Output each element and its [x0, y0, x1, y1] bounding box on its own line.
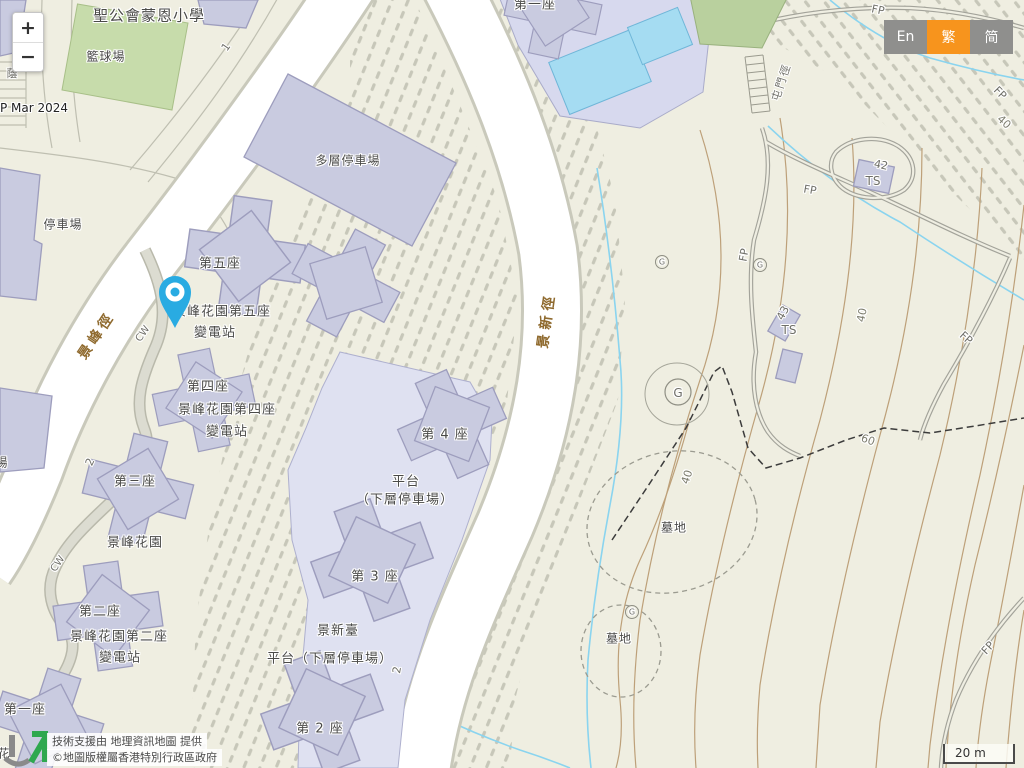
grave-symbol-small-2: G: [757, 261, 763, 270]
cemetery-label-1: 墓地: [661, 519, 687, 536]
cw-label-1: CW: [134, 324, 153, 344]
attribution-support: 技術支援由 地理資訊地圖 提供: [47, 733, 207, 750]
tower2-label: 第 2 座: [296, 718, 344, 737]
fp-label-3: FP: [802, 182, 817, 197]
cw-label-2: CW: [49, 554, 68, 574]
zoom-control: + −: [12, 12, 44, 72]
block4-substation-line2: 變電站: [206, 421, 248, 440]
podium2-label: 平台（下層停車場）: [267, 648, 393, 667]
basketball-court-label: 籃球場: [86, 48, 125, 65]
geoinfo-map-logo[interactable]: [2, 731, 48, 768]
podium1-line2: （下層停車場）: [356, 489, 454, 508]
language-switcher: En 繁 简: [884, 20, 1013, 54]
multistorey-carpark-label: 多層停車場: [315, 152, 380, 169]
fp-label-1: FP: [870, 2, 885, 17]
contour-40-a: 40: [994, 112, 1013, 131]
carpark-label: 停車場: [43, 216, 82, 233]
location-pin[interactable]: [155, 272, 195, 332]
tower4-label: 第 4 座: [421, 424, 469, 443]
block2-substation-line1: 景峰花園第二座: [70, 626, 168, 645]
map-date: P Mar 2024: [0, 101, 68, 115]
grave-symbol-small-1: G: [659, 258, 665, 267]
fp-label-4: FP: [736, 247, 751, 262]
ts-label-1: TS: [866, 174, 881, 188]
zoom-in-button[interactable]: +: [13, 13, 43, 42]
block3-label: 第三座: [114, 471, 156, 490]
lang-english-button[interactable]: En: [884, 20, 927, 54]
king-san-path-label: 景新徑: [532, 290, 560, 349]
contour-40-b: 40: [854, 307, 870, 323]
fp-label-5: FP: [957, 329, 975, 347]
block2-label: 第二座: [79, 601, 121, 620]
contour-60: 60: [859, 431, 877, 448]
tuen-mun-trail-label: 屯門徑: [767, 61, 794, 103]
block5-label: 第五座: [199, 253, 241, 272]
king-fung-path-label: 景峰徑: [73, 307, 120, 363]
lang-traditional-button[interactable]: 繁: [927, 20, 970, 54]
top-block1-label: 第一座: [514, 0, 556, 13]
school-label: 聖公會蒙恩小學: [93, 5, 205, 26]
tower3-label: 第 3 座: [351, 566, 399, 585]
fp-label-6: FP: [979, 639, 997, 657]
ts-label-2: TS: [782, 323, 797, 337]
attribution-copyright: ©地圖版權屬香港特別行政區政府: [47, 749, 222, 766]
zoom-out-button[interactable]: −: [13, 42, 43, 71]
map-viewport[interactable]: 聖公會蒙恩小學籃球場P Mar 2024停車場多層停車場第五座景峰花園第五座變電…: [0, 0, 1024, 768]
map-labels: 聖公會蒙恩小學籃球場P Mar 2024停車場多層停車場第五座景峰花園第五座變電…: [0, 0, 1024, 768]
road-number-1: 1: [219, 40, 234, 53]
contour-40-c: 40: [679, 468, 696, 485]
cemetery-label-2: 墓地: [606, 630, 632, 647]
spot-height-42: 42: [873, 157, 889, 173]
grave-symbol-small-3: G: [629, 608, 635, 617]
estate-label: 景峰花園: [107, 532, 163, 551]
block4-substation-line1: 景峰花園第四座: [178, 399, 276, 418]
block1-label: 第一座: [4, 699, 46, 718]
road-number-2a: 2: [83, 456, 98, 468]
grave-symbol-large: G: [673, 386, 682, 400]
scale-bar: 20 m: [943, 744, 1015, 764]
kingsfield-terrace-label: 景新臺: [317, 620, 359, 639]
block4-label: 第四座: [187, 376, 229, 395]
podium1-line1: 平台: [392, 471, 420, 490]
spot-height-43: 43: [774, 304, 792, 322]
partial-char-mid-left: 場: [0, 454, 9, 471]
road-number-2b: 2: [390, 665, 404, 674]
block5-substation-line2: 變電站: [194, 322, 236, 341]
lang-simplified-button[interactable]: 简: [970, 20, 1013, 54]
fp-label-2: FP: [991, 84, 1009, 102]
block2-substation-line2: 變電站: [99, 647, 141, 666]
